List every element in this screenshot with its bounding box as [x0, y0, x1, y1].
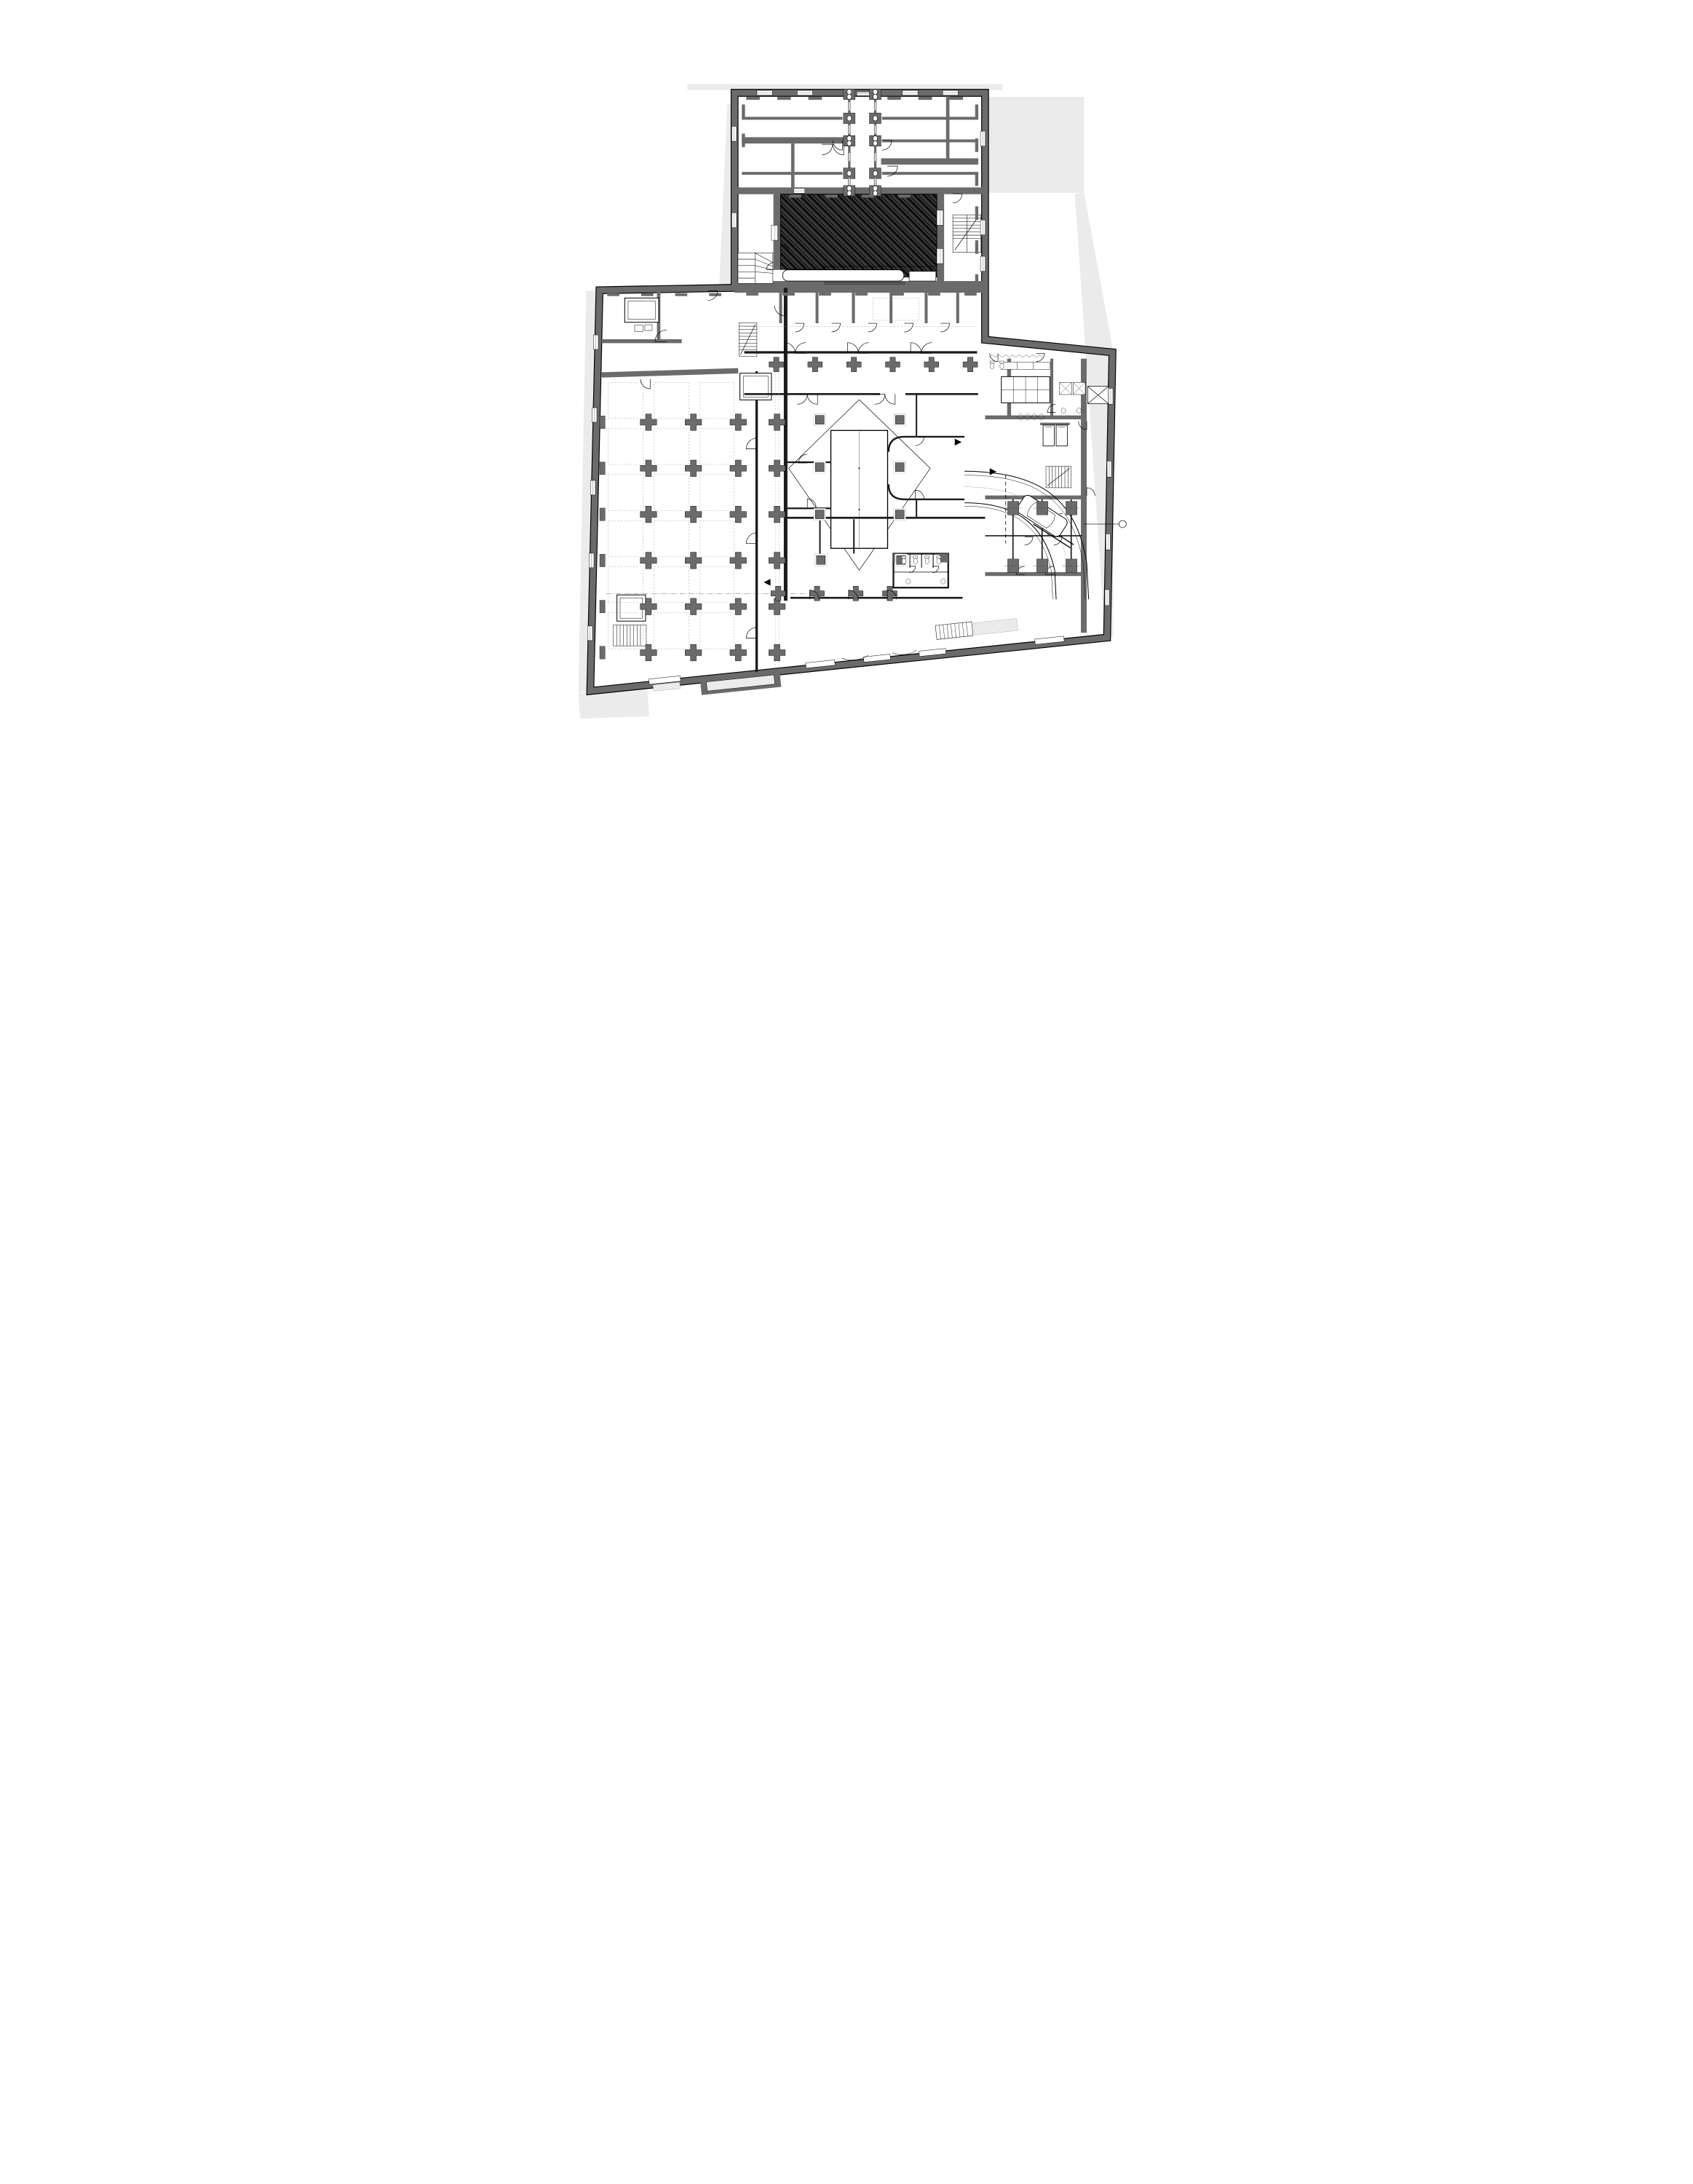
- auditorium-hatched-void: [780, 194, 937, 269]
- right-wing-stair: [1046, 467, 1071, 488]
- core-elevator: [740, 373, 771, 400]
- winder-stair: [737, 253, 772, 283]
- wall-b: [881, 158, 978, 165]
- shaft-x: [1087, 387, 1109, 404]
- lower-left-stair: [613, 625, 646, 646]
- entrance-lobby: [782, 270, 904, 281]
- drawing-sheet: [565, 0, 1129, 728]
- floor-plan-svg: [565, 0, 1129, 728]
